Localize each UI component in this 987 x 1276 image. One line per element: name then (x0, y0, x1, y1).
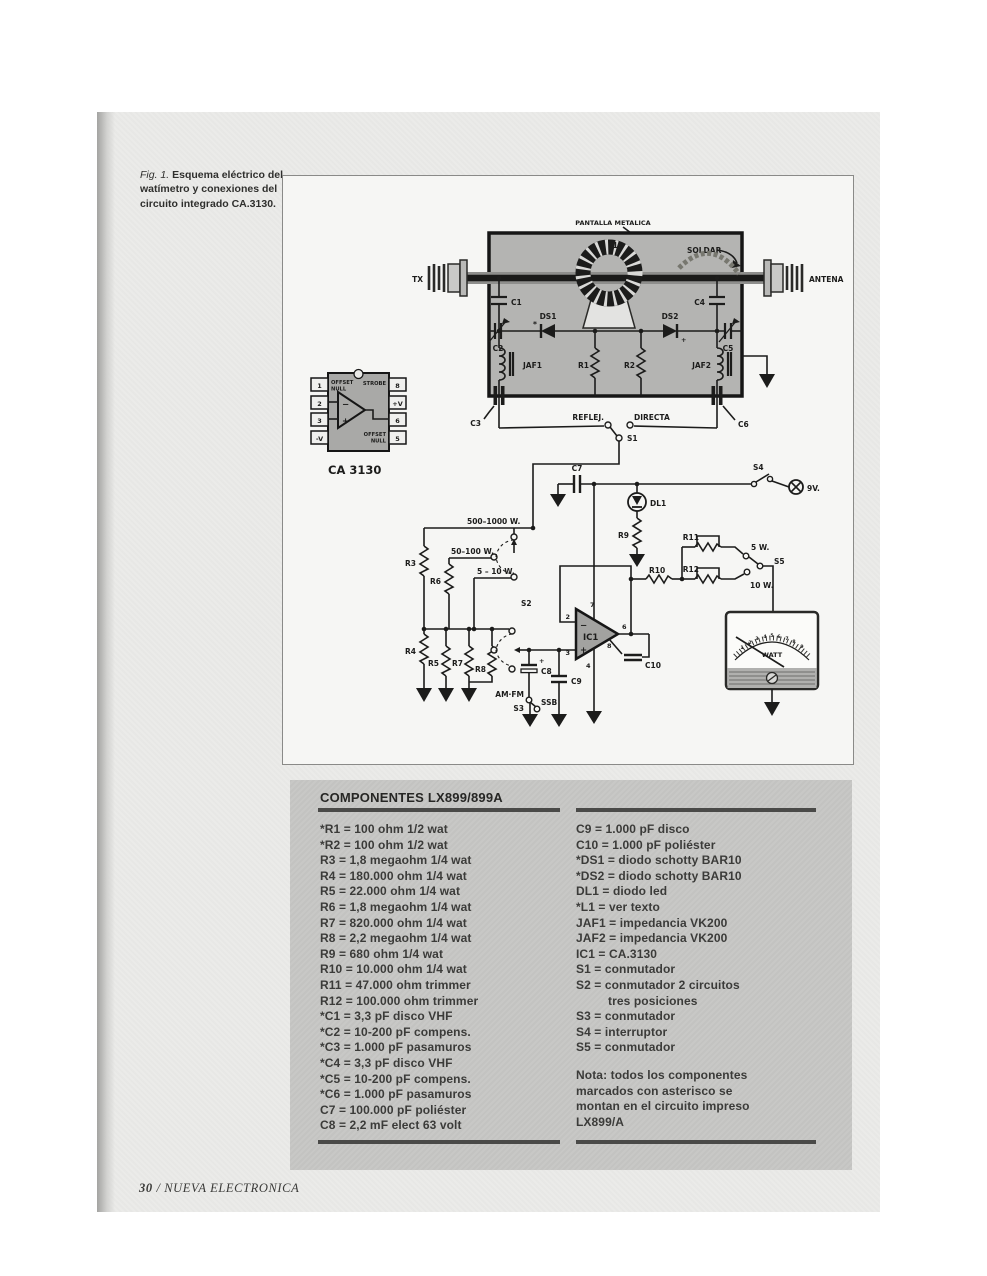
supply-rail (558, 475, 753, 494)
page-number: 30 (139, 1181, 153, 1195)
ds2-label: DS2 (662, 312, 679, 321)
component-item: JAF2 = impedancia VK200 (576, 931, 826, 947)
antenna-connector (764, 260, 802, 296)
meter-tick-1: 1 (740, 645, 743, 651)
l1-label: L1 (608, 241, 618, 250)
r6-label: R6 (430, 577, 441, 586)
r3-label: R3 (405, 559, 416, 568)
antenna-label: ANTENA (809, 275, 844, 284)
r5-label: R5 (428, 659, 439, 668)
5w-label: 5 W. (751, 543, 769, 552)
junction-dot (629, 632, 634, 637)
ground-arrow (629, 554, 645, 567)
r7-label: R7 (452, 659, 463, 668)
component-item: S4 = interruptor (576, 1025, 826, 1041)
c9-label: C9 (571, 677, 582, 686)
figure-caption: Fig. 1. Esquema eléctrico del watímetro … (140, 168, 302, 211)
junction-dot (497, 276, 502, 281)
led-dl1 (628, 484, 646, 518)
component-item: R6 = 1,8 megaohm 1/4 wat (320, 900, 570, 916)
ic1-pin6: 6 (622, 623, 627, 631)
components-list-box: COMPONENTES LX899/899A *R1 = 100 ohm 1/2… (290, 780, 852, 1170)
dip-pin-6: 6 (395, 417, 400, 425)
components-column-right: C9 = 1.000 pF disco C10 = 1.000 pF polié… (576, 822, 826, 1130)
dip-offset-null-top-2: NULL (331, 387, 347, 393)
dip-opamp-minus: − (342, 400, 349, 410)
components-note: Nota: todos los componentes marcados con… (576, 1068, 826, 1130)
range-50-100w-label: 50–100 W. (451, 547, 494, 556)
switch-s1 (499, 422, 717, 528)
ds1-label: DS1 (540, 312, 557, 321)
junction-dot (715, 276, 720, 281)
component-item: R8 = 2,2 megaohm 1/4 wat (320, 931, 570, 947)
9v-label: 9V. (807, 484, 820, 493)
r10-label: R10 (649, 566, 665, 575)
range-500-1000w-label: 500–1000 W. (467, 517, 521, 526)
component-item: S1 = conmutador (576, 962, 826, 978)
ic1-pin7: 7 (590, 601, 595, 609)
switch-s3 (526, 697, 540, 714)
divider-rule (318, 808, 560, 812)
component-item: DL1 = diodo led (576, 884, 826, 900)
jaf1-label: JAF1 (522, 361, 542, 370)
ground-arrow (438, 688, 454, 702)
component-item: *C3 = 1.000 pF pasamuros (320, 1040, 570, 1056)
components-title: COMPONENTES LX899/899A (320, 790, 503, 805)
dip-offset-null-bottom-1: OFFSET (364, 432, 387, 438)
feedthrough-c3 (484, 386, 505, 428)
ca3130-dip-diagram (311, 370, 406, 452)
component-item: C10 = 1.000 pF poliéster (576, 838, 826, 854)
divider-rule (576, 808, 816, 812)
resistor-r10 (631, 575, 682, 583)
r11-label: R11 (683, 533, 699, 542)
component-item: *C6 = 1.000 pF pasamuros (320, 1087, 570, 1103)
component-item: C9 = 1.000 pF disco (576, 822, 826, 838)
dip-pin-minus-v: -V (316, 435, 323, 443)
reflej-label: REFLEJ. (572, 413, 604, 422)
ground-arrow (416, 688, 432, 702)
dip-opamp-plus: + (342, 417, 349, 427)
magazine-page-scan: { "caption": { "fig": "Fig. 1.", "text":… (0, 0, 987, 1276)
meter-tick-3: 3 (755, 636, 758, 642)
r8-label: R8 (475, 665, 486, 674)
r9-label: R9 (618, 531, 629, 540)
meter-tick-6: 6 (777, 634, 780, 640)
component-item: R11 = 47.000 ohm trimmer (320, 978, 570, 994)
jaf2-label: JAF2 (691, 361, 711, 370)
component-item: R3 = 1,8 megaohm 1/4 wat (320, 853, 570, 869)
component-item: *C4 = 3,3 pF disco VHF (320, 1056, 570, 1072)
dip-offset-null-bottom-2: NULL (371, 439, 387, 445)
ds1-asterisk: * (533, 320, 537, 329)
ground-arrow (461, 688, 477, 702)
components-column-left: *R1 = 100 ohm 1/2 wat *R2 = 100 ohm 1/2 … (320, 822, 570, 1134)
dip-strobe-label: STROBE (363, 381, 387, 387)
component-item: *DS2 = diodo schotty BAR10 (576, 869, 826, 885)
ic1-pin4: 4 (586, 662, 591, 670)
s1-label: S1 (627, 434, 638, 443)
tx-connector (429, 260, 467, 296)
amfm-label: AM·FM (495, 690, 524, 699)
ground-arrow (586, 711, 602, 724)
ds2-polarity: + (681, 336, 686, 344)
ground-arrow (551, 714, 567, 727)
c5-label: C5 (723, 344, 734, 353)
component-item: R9 = 680 ohm 1/4 wat (320, 947, 570, 963)
s2-label: S2 (521, 599, 532, 608)
divider-rule (576, 1140, 816, 1144)
ic1-pin3: 3 (565, 649, 570, 657)
component-item: R12 = 100.000 ohm trimmer (320, 994, 570, 1010)
r1-label: R1 (578, 361, 589, 370)
s5-label: S5 (774, 557, 785, 566)
dip-pin-3: 3 (317, 417, 322, 425)
component-item: R5 = 22.000 ohm 1/4 wat (320, 884, 570, 900)
ic1-pin8: 8 (607, 642, 612, 650)
c10-label: C10 (645, 661, 661, 670)
component-item: R10 = 10.000 ohm 1/4 wat (320, 962, 570, 978)
c8-polarity: + (539, 657, 544, 665)
ic1-pin2: 2 (565, 613, 570, 621)
junction-dot (531, 526, 536, 531)
meter-tick-2: 2 (748, 640, 751, 646)
meter-tick-5: 5 (770, 633, 773, 639)
meter-tick-8: 8 (792, 639, 795, 645)
component-item: IC1 = CA.3130 (576, 947, 826, 963)
junction-dot (490, 627, 495, 632)
book-spine-shadow (97, 112, 115, 1212)
junction-dot (422, 627, 427, 632)
s4-label: S4 (753, 463, 764, 472)
meter-tick-4: 4 (763, 634, 766, 640)
c1-label: C1 (511, 298, 522, 307)
dip-pin-5: 5 (395, 435, 400, 443)
c7-label: C7 (572, 464, 583, 473)
component-item: *R2 = 100 ohm 1/2 wat (320, 838, 570, 854)
dip-offset-null-top-1: OFFSET (331, 380, 354, 386)
component-item: *C1 = 3,3 pF disco VHF (320, 1009, 570, 1025)
ic1-label: IC1 (583, 633, 598, 643)
component-item: S2 = conmutador 2 circuitos (576, 978, 826, 994)
c6-label: C6 (738, 420, 749, 429)
component-item: R4 = 180.000 ohm 1/4 wat (320, 869, 570, 885)
c8-label: C8 (541, 667, 552, 676)
ground-arrow (550, 494, 566, 507)
resistor-r9 (633, 518, 641, 554)
s3-label: S3 (513, 704, 524, 713)
battery-9v-symbol (789, 480, 803, 494)
shield-label: PANTALLA METALICA (575, 219, 650, 227)
meter-tick-7: 7 (785, 636, 788, 642)
10w-label: 10 W. (750, 581, 774, 590)
shield-right-ground (742, 356, 775, 388)
r2-label: R2 (624, 361, 635, 370)
dl1-label: DL1 (650, 499, 666, 508)
junction-dot (472, 627, 477, 632)
tx-label: TX (412, 275, 423, 284)
dip-pin-1: 1 (317, 382, 322, 390)
r4-label: R4 (405, 647, 416, 656)
cap-c10 (609, 634, 649, 660)
component-item: C7 = 100.000 pF poliéster (320, 1103, 570, 1119)
figure-number: Fig. 1. (140, 169, 169, 181)
component-item: S3 = conmutador (576, 1009, 826, 1025)
meter-watt-label: WATT (762, 651, 783, 659)
page-footer: 30 / NUEVA ELECTRONICA (139, 1181, 299, 1196)
directa-label: DIRECTA (634, 413, 670, 422)
switch-s4 (751, 474, 789, 487)
ca3130-title: CA 3130 (328, 463, 381, 477)
component-item: S5 = conmutador (576, 1040, 826, 1056)
component-item: *C2 = 10-200 pF compens. (320, 1025, 570, 1041)
component-item: *C5 = 10-200 pF compens. (320, 1072, 570, 1088)
component-item: *L1 = ver texto (576, 900, 826, 916)
component-item: *R1 = 100 ohm 1/2 wat (320, 822, 570, 838)
meter-tick-9: 9 (800, 644, 803, 650)
component-item: *DS1 = diodo schotty BAR10 (576, 853, 826, 869)
ground-arrow (764, 702, 780, 716)
wattmeter-schematic: PANTALLA METALICA TX ANTENA L1 SOLDAR C1 (283, 176, 853, 764)
c3-label: C3 (470, 419, 481, 428)
dip-pin-8: 8 (395, 382, 400, 390)
component-item-continuation: tres posiciones (576, 994, 826, 1010)
feedback-wire (560, 566, 631, 622)
range-5-10w-label: 5 – 10 W. (477, 567, 515, 576)
component-item: JAF1 = impedancia VK200 (576, 916, 826, 932)
ground-arrow (522, 714, 538, 727)
magazine-name: / NUEVA ELECTRONICA (156, 1181, 299, 1195)
junction-dot (467, 627, 472, 632)
component-item: R7 = 820.000 ohm 1/4 wat (320, 916, 570, 932)
divider-rule (318, 1140, 560, 1144)
schematic-figure: PANTALLA METALICA TX ANTENA L1 SOLDAR C1 (282, 175, 854, 765)
component-item: C8 = 2,2 mF elect 63 volt (320, 1118, 570, 1134)
r12-label: R12 (683, 565, 699, 574)
junction-dot (444, 627, 449, 632)
dip-pin-plus-v: +V (392, 400, 402, 408)
opamp-minus: − (580, 621, 587, 631)
ssb-label: SSB (541, 698, 557, 707)
opamp-plus: + (580, 646, 587, 656)
c4-label: C4 (694, 298, 705, 307)
dip-pin-2: 2 (317, 400, 322, 408)
